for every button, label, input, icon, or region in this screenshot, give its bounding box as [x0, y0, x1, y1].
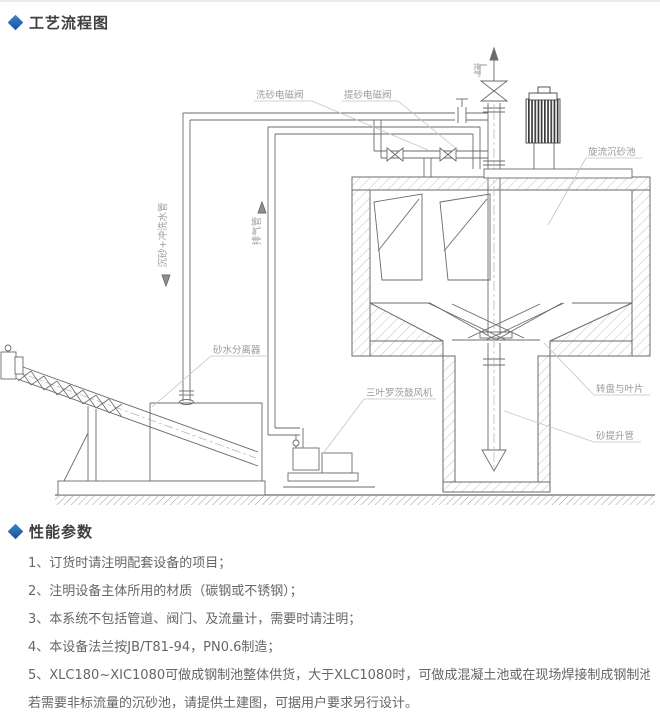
catalog-page: 工艺流程图: [0, 0, 660, 717]
vent-arrow-icon: [490, 48, 498, 60]
piping: [162, 99, 488, 448]
note-text: 订货时请注明配套设备的项目；: [49, 550, 650, 578]
label-exhaust-pipe: 排气管: [251, 217, 263, 246]
screw-spiral: [18, 367, 122, 417]
label-sand-flush-pipe: 沉砂+冲洗水管: [157, 203, 169, 268]
flow-down-arrow-icon: [162, 275, 170, 286]
section-diamond-icon: [8, 14, 24, 30]
label-lift-valve: 提砂电磁阀: [344, 89, 392, 101]
note-item: 5、 XLC180~XIC1080可做成钢制池整体供货，大于XLC1080时，可…: [28, 662, 650, 690]
note-number: 5、: [28, 662, 49, 690]
note-number: 4、: [28, 634, 49, 662]
note-item: 3、 本系统不包括管道、阀门、及流量计，需要时请注明；: [28, 606, 650, 634]
section-diamond-icon: [8, 523, 24, 539]
grit-tank: [352, 177, 650, 492]
label-cyclone-tank: 旋流沉砂池: [588, 146, 636, 158]
screw-drive-motor-icon: [1, 345, 23, 379]
note-number: 3、: [28, 606, 49, 634]
wash-solenoid-valve-icon: [387, 148, 403, 161]
label-wash-valve: 洗砂电磁阀: [256, 89, 304, 101]
stem-valve-icon: [456, 99, 468, 123]
performance-notes: 1、 订货时请注明配套设备的项目； 2、 注明设备主体所用的材质（碳钢或不锈钢）…: [0, 542, 660, 717]
note-text: 若需要非标流量的沉砂池，请提供土建图，可据用户要求另行设计。: [28, 690, 650, 717]
diagram-labels: 洗砂电磁阀 提砂电磁阀 旋流沉砂池 砂水分离器 三叶罗茨鼓风机 转盘与叶片 砂提…: [157, 62, 644, 442]
note-number: 2、: [28, 578, 49, 606]
sand-water-separator: [1, 345, 265, 495]
label-sand-lift-pipe: 砂提升管: [596, 430, 634, 442]
ground: [55, 495, 655, 505]
flow-section-title: 工艺流程图: [29, 12, 109, 33]
sand-lift-pipe: [482, 53, 506, 471]
label-blower: 三叶罗茨鼓风机: [366, 387, 433, 399]
perf-section-header: 性能参数: [0, 511, 660, 542]
tank-internals: [370, 194, 632, 340]
lift-solenoid-valve-icon: [440, 148, 456, 161]
label-vent-top: 排气: [473, 62, 481, 77]
label-turntable: 转盘与叶片: [596, 383, 644, 395]
note-item: 若需要非标流量的沉砂池，请提供土建图，可据用户要求另行设计。: [28, 690, 650, 717]
vent-valve-icon: [481, 81, 507, 101]
note-item: 4、 本设备法兰按JB/T81-94，PN0.6制造；: [28, 634, 650, 662]
note-text: 本设备法兰按JB/T81-94，PN0.6制造；: [49, 634, 650, 662]
process-flow-diagram: 洗砂电磁阀 提砂电磁阀 旋流沉砂池 砂水分离器 三叶罗茨鼓风机 转盘与叶片 砂提…: [0, 33, 660, 511]
note-number: 1、: [28, 550, 49, 578]
flow-up-arrow-icon: [258, 202, 266, 213]
motor-icon: [526, 87, 560, 169]
label-separator: 砂水分离器: [213, 344, 261, 356]
riser-and-motor: [480, 48, 632, 178]
note-text: 注明设备主体所用的材质（碳钢或不锈钢）；: [49, 578, 650, 606]
note-item: 2、 注明设备主体所用的材质（碳钢或不锈钢）；: [28, 578, 650, 606]
perf-section-title: 性能参数: [29, 521, 93, 542]
note-text: 本系统不包括管道、阀门、及流量计，需要时请注明；: [49, 606, 650, 634]
flow-section-header: 工艺流程图: [0, 2, 660, 33]
note-item: 1、 订货时请注明配套设备的项目；: [28, 550, 650, 578]
roots-blower: [283, 440, 375, 487]
note-text: XLC180~XIC1080可做成钢制池整体供货，大于XLC1080时，可做成混…: [49, 662, 650, 690]
